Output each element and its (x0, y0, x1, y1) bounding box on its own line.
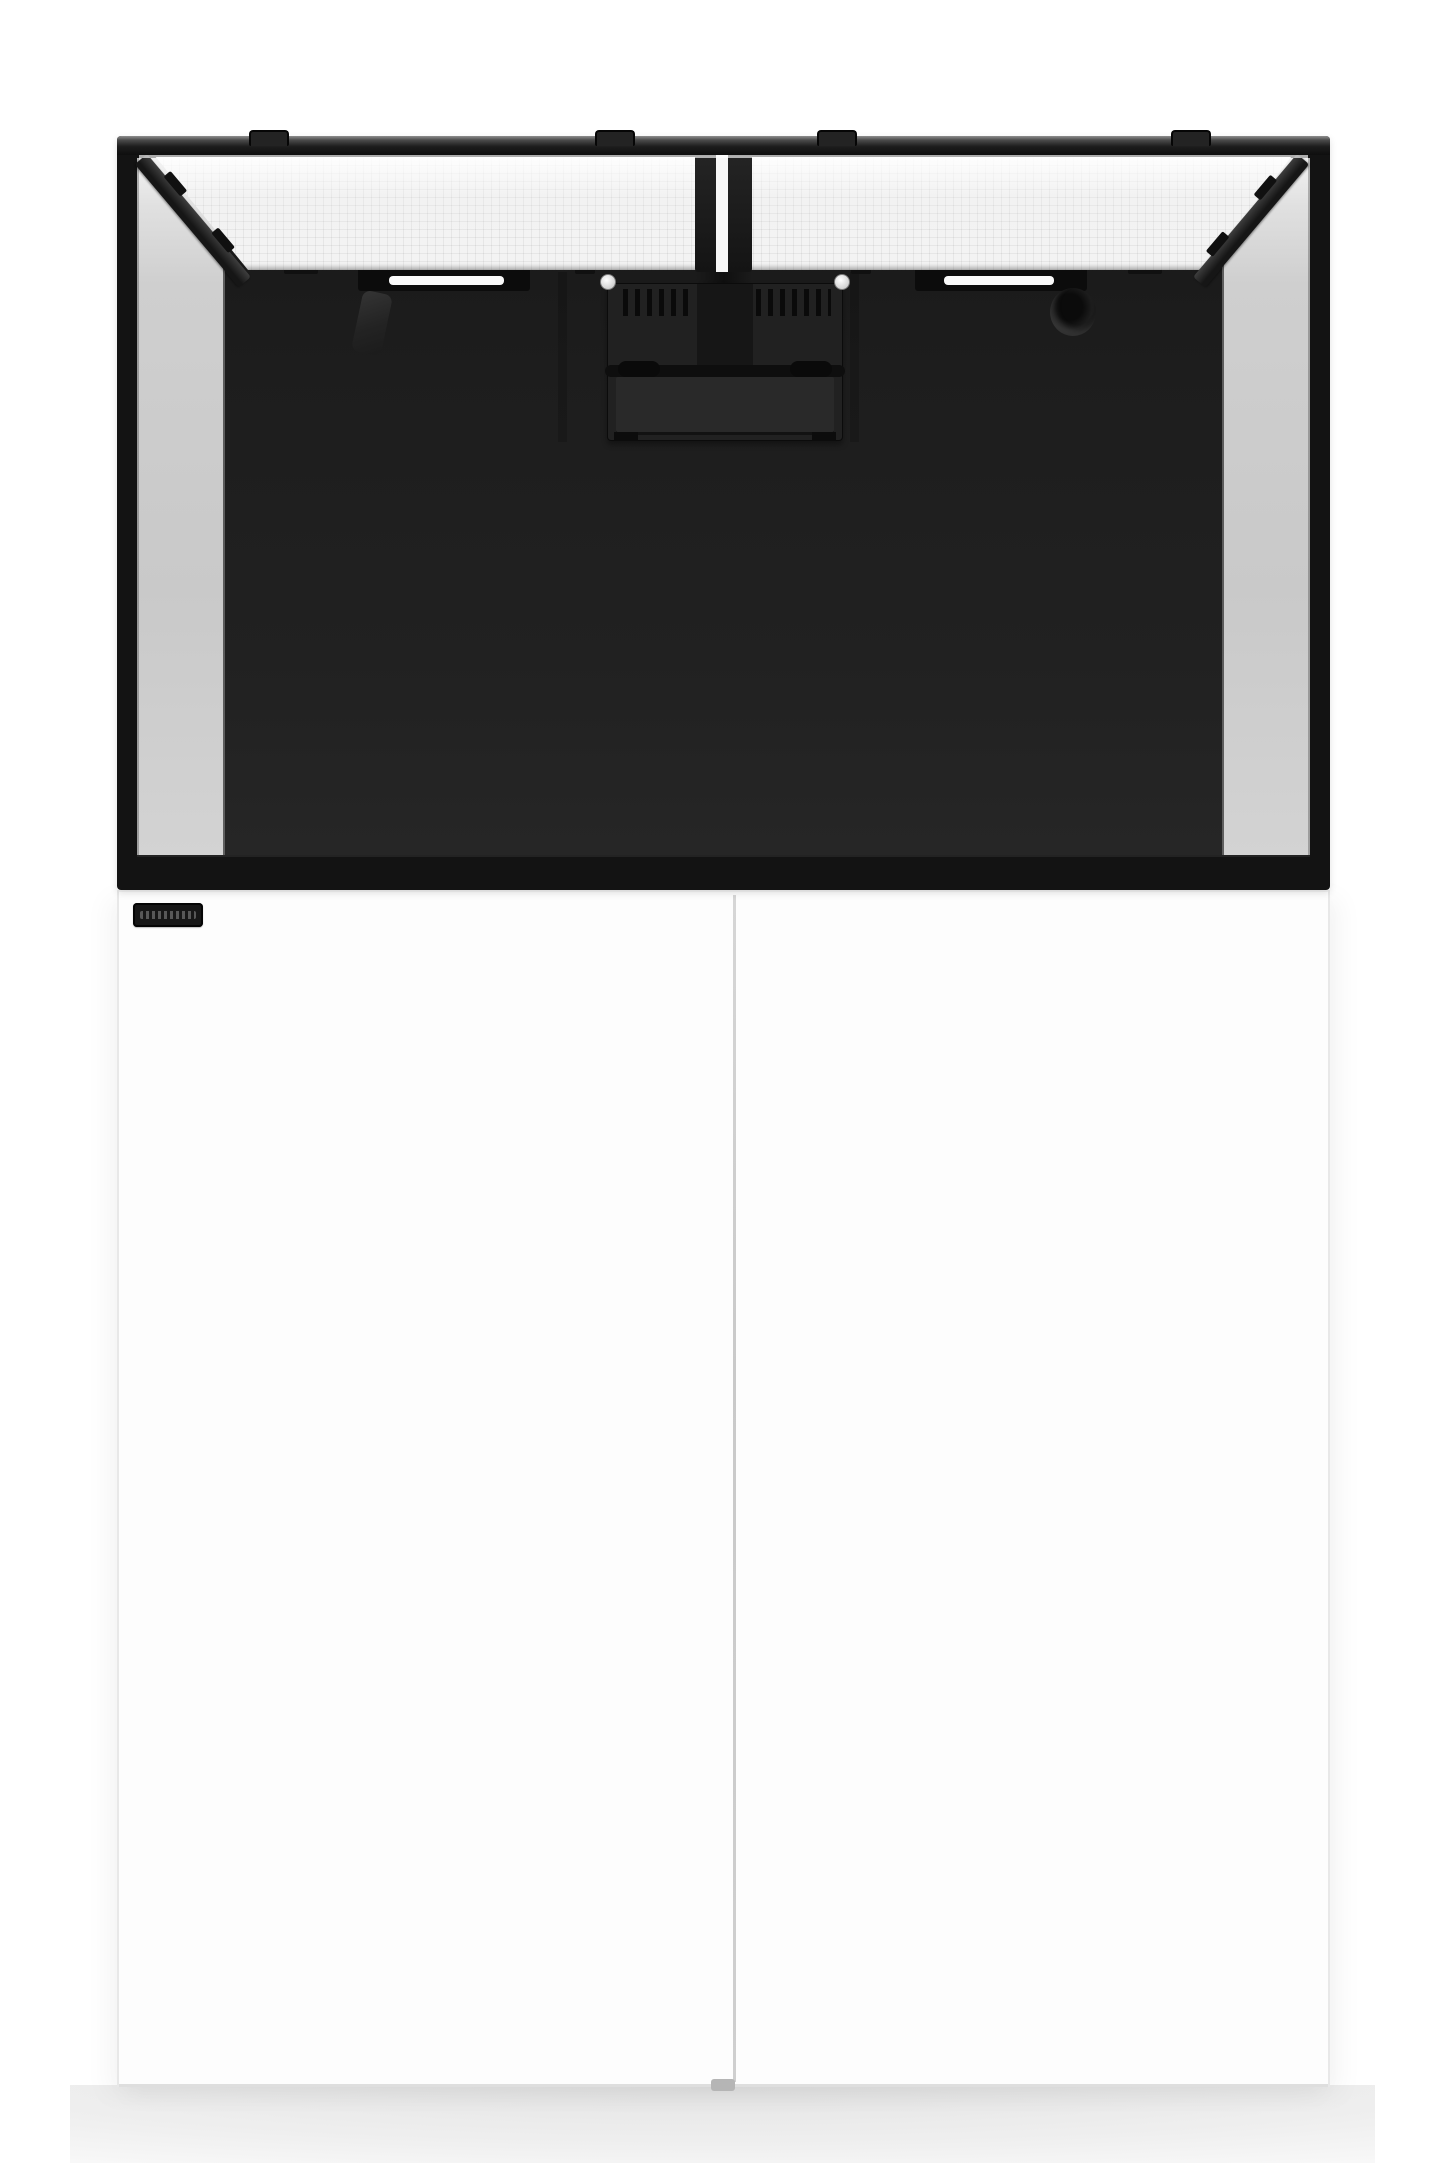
brand-badge (133, 903, 203, 927)
thumb-screw-left (600, 274, 616, 290)
overflow-foot (614, 432, 638, 441)
lid-clip (817, 130, 857, 146)
aquarium-tank (117, 136, 1330, 890)
product-image (0, 0, 1445, 2168)
cabinet-door-seam (733, 895, 736, 2082)
bottom-frame-edge (137, 855, 1310, 857)
cabinet-stand (117, 890, 1330, 2087)
lid-inner-frame-right (728, 156, 752, 272)
overflow-knob-right (790, 361, 832, 377)
lid-center-gap (716, 140, 728, 272)
overflow-foot (812, 432, 836, 441)
hose-clip-ring (1050, 288, 1096, 336)
overflow-center-column (697, 284, 753, 377)
handle-slot-right (944, 276, 1054, 285)
thumb-screw-right (834, 274, 850, 290)
back-panel-seam (850, 272, 859, 442)
lid-inner-frame-left (695, 156, 716, 272)
brand-badge-engraving (140, 911, 196, 919)
weir-teeth-right (756, 289, 831, 316)
overflow-box (607, 283, 843, 441)
overflow-lower-chamber (616, 377, 834, 432)
right-side-glass (1222, 158, 1310, 855)
lid-clip (249, 130, 289, 146)
tank-top-rim (117, 136, 1330, 155)
left-side-glass (137, 158, 225, 855)
cabinet-center-foot (711, 2079, 735, 2091)
weir-teeth-left (623, 289, 695, 316)
lid-clip (1171, 130, 1211, 146)
lid-clip (595, 130, 635, 146)
handle-slot-left (389, 276, 504, 285)
rim-highlight (139, 155, 1308, 158)
back-panel-seam (558, 272, 567, 442)
overflow-knob-left (618, 361, 660, 377)
floor-shadow (70, 2085, 1375, 2163)
